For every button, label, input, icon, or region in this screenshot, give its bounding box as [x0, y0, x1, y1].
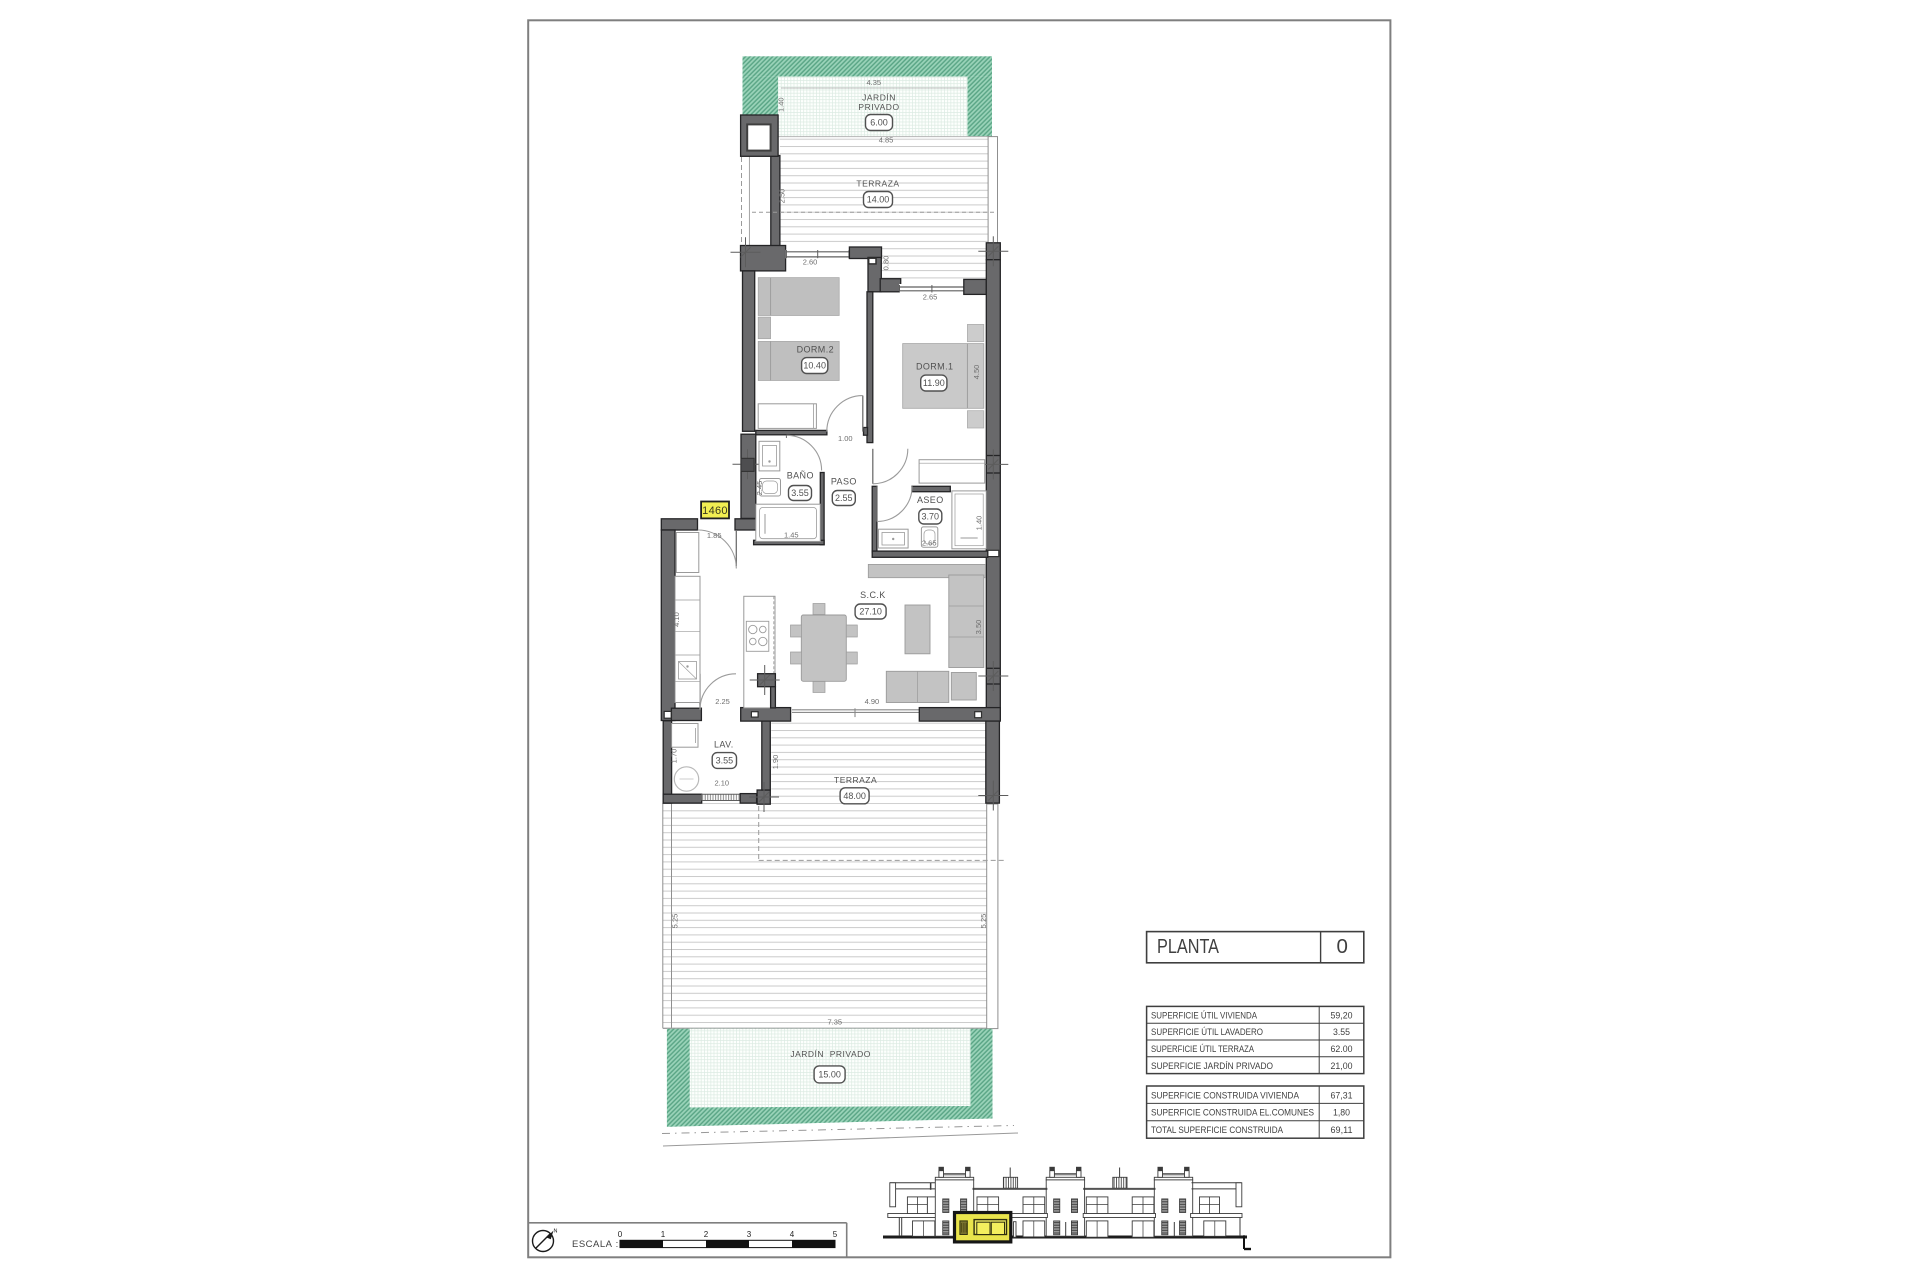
svg-text:PLANTA: PLANTA [1157, 935, 1219, 958]
svg-text:4.50: 4.50 [972, 365, 981, 380]
svg-text:1.40: 1.40 [777, 97, 786, 112]
svg-text:1.40: 1.40 [974, 516, 983, 531]
svg-text:3.55: 3.55 [1333, 1027, 1350, 1038]
svg-text:2.45: 2.45 [755, 481, 764, 496]
svg-text:3.70: 3.70 [922, 512, 940, 522]
svg-text:0: 0 [1336, 935, 1347, 958]
svg-text:LAV.: LAV. [714, 740, 734, 750]
svg-text:27.10: 27.10 [859, 607, 882, 617]
svg-text:69,11: 69,11 [1331, 1125, 1353, 1136]
svg-text:SUPERFICIE CONSTRUIDA EL.COMUN: SUPERFICIE CONSTRUIDA EL.COMUNES [1151, 1108, 1314, 1119]
svg-text:4.85: 4.85 [879, 136, 894, 145]
svg-text:5: 5 [833, 1230, 838, 1239]
svg-text:2.65: 2.65 [922, 539, 937, 548]
svg-text:2.25: 2.25 [715, 697, 730, 706]
svg-text:ASEO: ASEO [917, 495, 944, 505]
svg-text:1.70: 1.70 [670, 749, 679, 764]
svg-text:SUPERFICIE CONSTRUIDA VIVIENDA: SUPERFICIE CONSTRUIDA VIVIENDA [1151, 1090, 1300, 1101]
svg-text:7.35: 7.35 [827, 1018, 842, 1027]
svg-text:4.90: 4.90 [865, 697, 880, 706]
svg-text:TOTAL SUPERFICIE CONSTRUIDA: TOTAL SUPERFICIE CONSTRUIDA [1151, 1125, 1283, 1136]
svg-text:3.55: 3.55 [791, 488, 809, 498]
svg-text:2.10: 2.10 [714, 779, 729, 788]
svg-text:2.65: 2.65 [923, 293, 938, 302]
svg-text:SUPERFICIE ÚTIL VIVIENDA: SUPERFICIE ÚTIL VIVIENDA [1151, 1010, 1257, 1021]
svg-text:JARDÍN: JARDÍN [862, 93, 896, 103]
svg-text:5.25: 5.25 [671, 914, 680, 929]
svg-text:S.C.K: S.C.K [860, 590, 886, 600]
svg-text:0.80: 0.80 [882, 256, 891, 271]
svg-text:3.55: 3.55 [716, 756, 734, 766]
svg-text:1.85: 1.85 [707, 531, 722, 540]
svg-text:N: N [554, 1229, 558, 1235]
svg-text:2.60: 2.60 [803, 258, 818, 267]
svg-text:3: 3 [747, 1230, 752, 1239]
svg-text:PRIVADO: PRIVADO [858, 102, 899, 112]
svg-text:1,80: 1,80 [1333, 1108, 1350, 1119]
svg-text:67,31: 67,31 [1331, 1090, 1353, 1101]
svg-text:DORM.1: DORM.1 [916, 362, 953, 372]
svg-text:1: 1 [661, 1230, 666, 1239]
svg-text:SUPERFICIE ÚTIL LAVADERO: SUPERFICIE ÚTIL LAVADERO [1151, 1027, 1263, 1038]
svg-text:1.45: 1.45 [784, 531, 799, 540]
svg-text:TERRAZA: TERRAZA [834, 775, 877, 785]
svg-text:2.50: 2.50 [778, 189, 787, 204]
svg-text:62.00: 62.00 [1331, 1044, 1353, 1055]
svg-text:1.00: 1.00 [838, 434, 853, 443]
svg-text:BAÑO: BAÑO [787, 471, 814, 481]
svg-text:5.25: 5.25 [979, 914, 988, 929]
svg-text:PASO: PASO [831, 477, 857, 487]
svg-text:SUPERFICIE ÚTIL TERRAZA: SUPERFICIE ÚTIL TERRAZA [1151, 1044, 1254, 1055]
svg-text:6.00: 6.00 [870, 118, 888, 128]
svg-text:3.50: 3.50 [974, 620, 983, 635]
svg-text:2.55: 2.55 [835, 493, 853, 503]
svg-text:SUPERFICIE JARDÍN PRIVADO: SUPERFICIE JARDÍN PRIVADO [1151, 1061, 1273, 1072]
svg-text:0: 0 [618, 1230, 623, 1239]
svg-text:ESCALA :: ESCALA : [572, 1239, 619, 1250]
svg-text:14.00: 14.00 [867, 195, 890, 205]
svg-text:10.40: 10.40 [803, 361, 826, 371]
svg-text:2: 2 [704, 1230, 709, 1239]
svg-text:DORM.2: DORM.2 [797, 345, 834, 355]
svg-text:4: 4 [790, 1230, 795, 1239]
svg-text:JARDÍN PRIVADO: JARDÍN PRIVADO [790, 1049, 871, 1059]
svg-text:11.90: 11.90 [923, 378, 945, 388]
svg-text:59,20: 59,20 [1331, 1010, 1353, 1021]
svg-text:21,00: 21,00 [1331, 1061, 1353, 1072]
svg-text:4.10: 4.10 [672, 612, 681, 627]
svg-text:48.00: 48.00 [843, 791, 866, 801]
svg-text:1.90: 1.90 [771, 755, 780, 770]
svg-text:TERRAZA: TERRAZA [856, 179, 899, 189]
svg-text:1460: 1460 [702, 505, 728, 517]
svg-text:4.35: 4.35 [866, 78, 881, 87]
svg-text:15.00: 15.00 [818, 1070, 841, 1080]
